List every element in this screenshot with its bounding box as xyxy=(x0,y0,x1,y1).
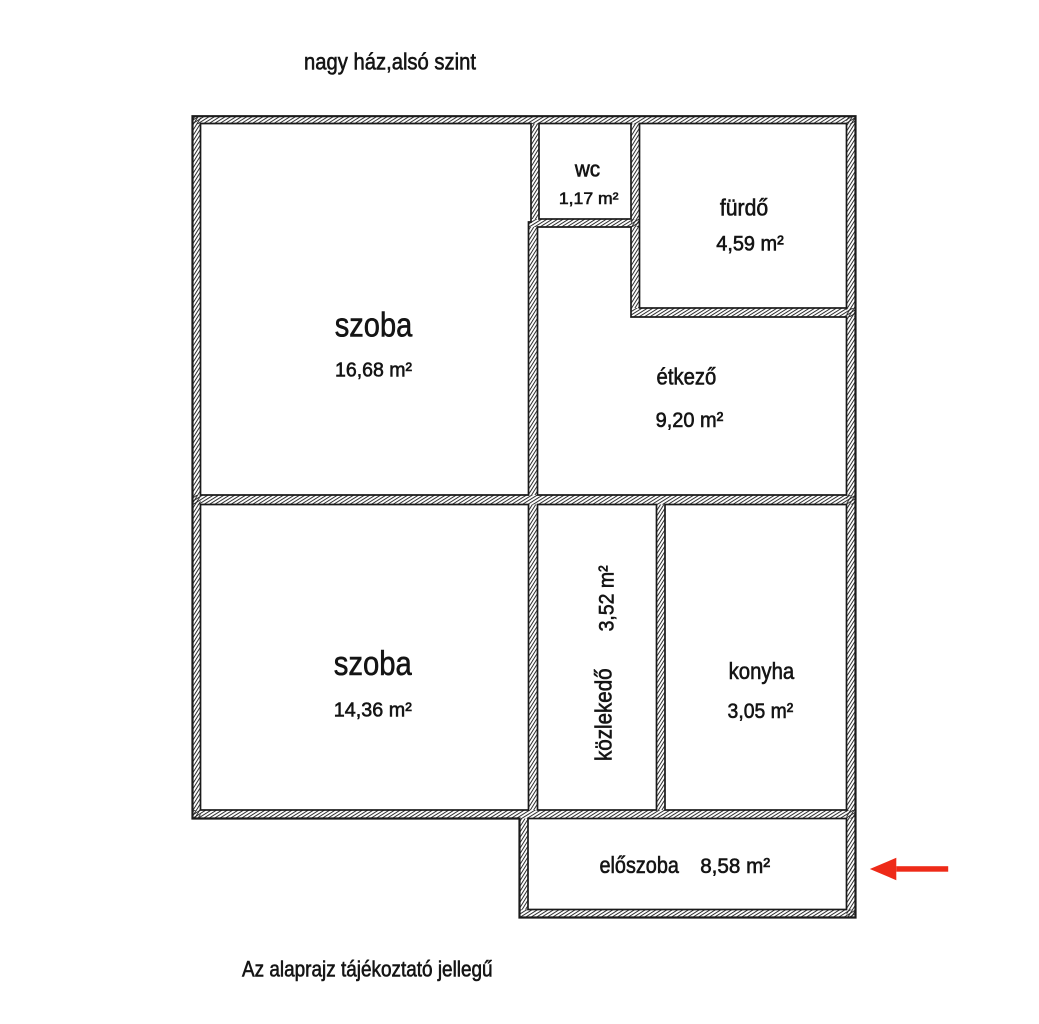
svg-text:konyha: konyha xyxy=(729,658,795,684)
svg-text:előszoba: előszoba xyxy=(600,852,680,878)
svg-text:szoba: szoba xyxy=(335,306,413,344)
svg-text:16,68 m²: 16,68 m² xyxy=(335,358,412,381)
svg-text:étkező: étkező xyxy=(657,364,717,390)
svg-text:fürdő: fürdő xyxy=(720,195,768,221)
svg-text:3,05 m²: 3,05 m² xyxy=(728,700,794,723)
svg-text:1,17 m²: 1,17 m² xyxy=(559,189,619,208)
svg-text:közlekedő: közlekedő xyxy=(591,668,617,761)
svg-text:3,52 m²: 3,52 m² xyxy=(596,565,619,631)
svg-text:14,36 m²: 14,36 m² xyxy=(334,698,412,721)
svg-text:8,58 m²: 8,58 m² xyxy=(700,855,770,878)
svg-text:Az alaprajz tájékoztató jelleg: Az alaprajz tájékoztató jellegű xyxy=(242,957,493,982)
svg-text:4,59 m²: 4,59 m² xyxy=(716,233,784,256)
svg-text:szoba: szoba xyxy=(334,645,412,683)
svg-text:wc: wc xyxy=(574,157,600,182)
svg-text:9,20 m²: 9,20 m² xyxy=(656,409,724,432)
svg-text:nagy ház,alsó szint: nagy ház,alsó szint xyxy=(304,48,476,74)
